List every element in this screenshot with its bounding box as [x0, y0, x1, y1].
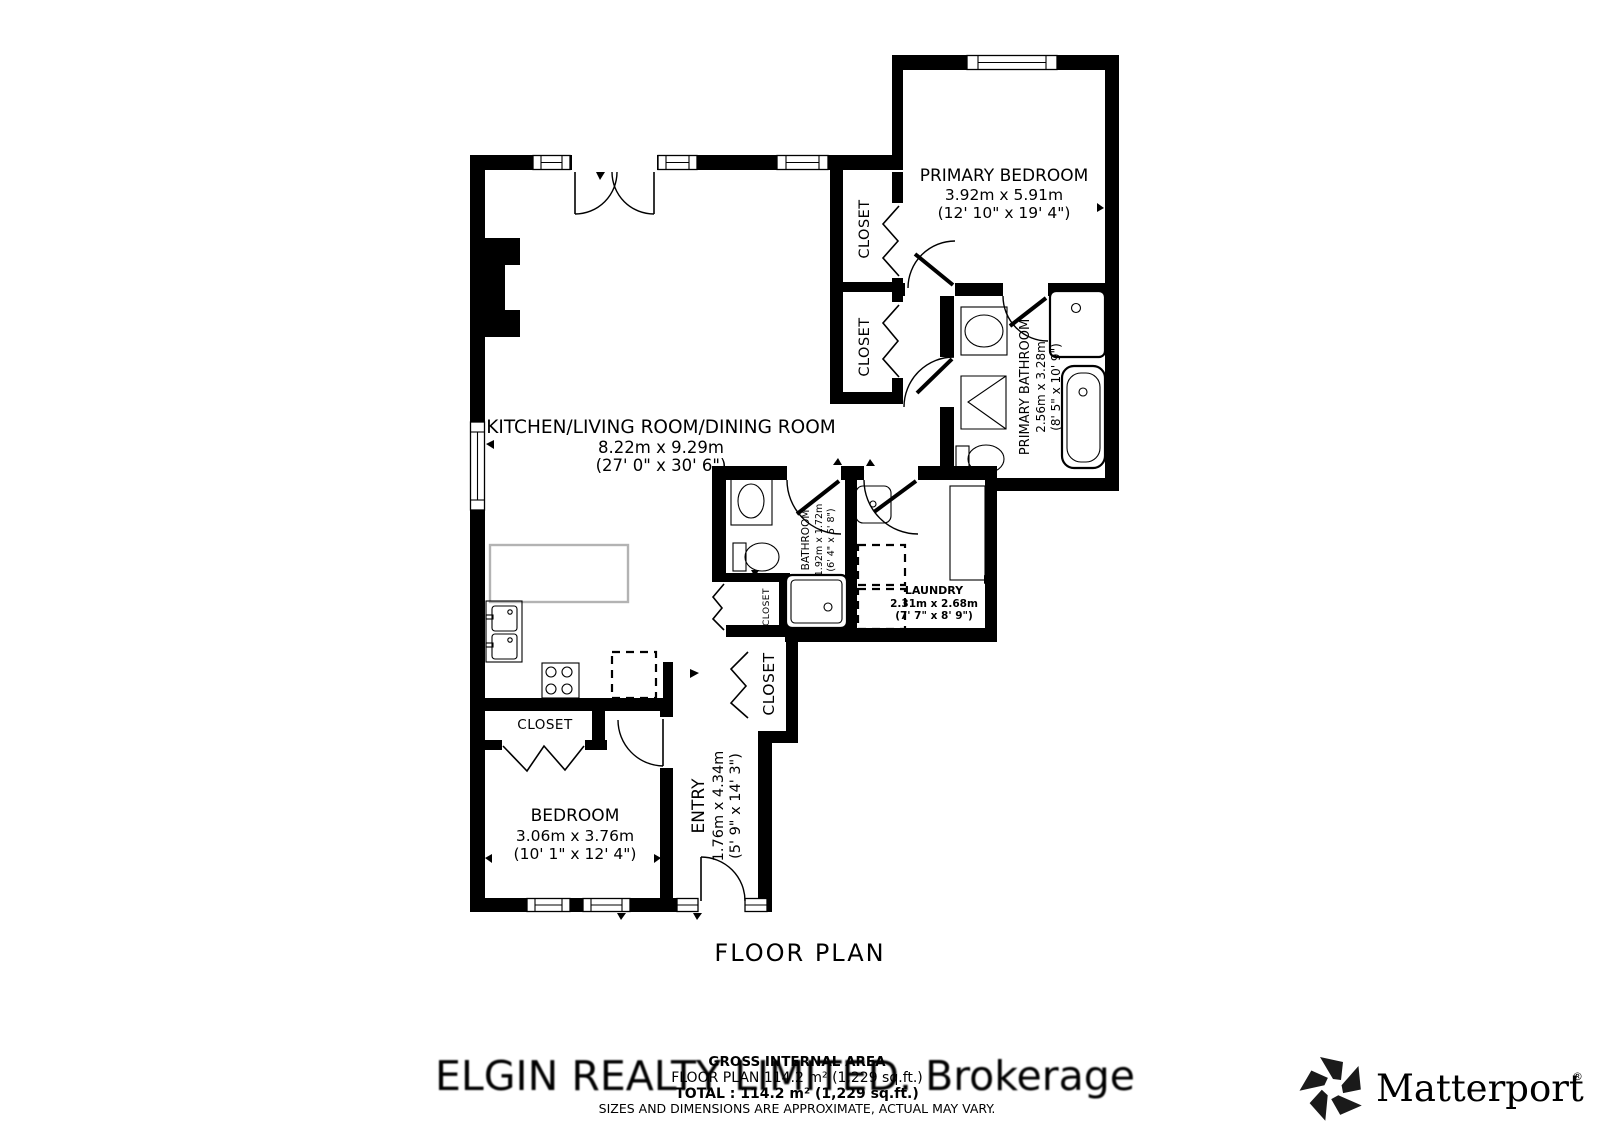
floor-plan-area: FLOOR PLAN 114.2 m² (1,229 sq.ft.) — [671, 1070, 923, 1086]
disclaimer: SIZES AND DIMENSIONS ARE APPROXIMATE, AC… — [599, 1101, 996, 1116]
svg-text:1.92m x 1.72m: 1.92m x 1.72m — [814, 504, 825, 576]
svg-text:(10' 1" x 12' 4"): (10' 1" x 12' 4") — [514, 845, 637, 863]
svg-text:(5' 9" x 14' 3"): (5' 9" x 14' 3") — [728, 753, 744, 859]
stove — [542, 663, 579, 698]
window — [658, 156, 697, 170]
window — [471, 422, 485, 510]
svg-text:PRIMARY BEDROOM: PRIMARY BEDROOM — [920, 166, 1089, 186]
window — [583, 899, 630, 912]
closet-label-small: CLOSET — [762, 588, 772, 626]
vanity — [961, 376, 1006, 429]
svg-text:PRIMARY BATHROOM: PRIMARY BATHROOM — [1018, 319, 1033, 455]
window — [745, 899, 767, 912]
svg-text:(12' 10" x 19' 4"): (12' 10" x 19' 4") — [938, 204, 1071, 222]
svg-text:ENTRY: ENTRY — [689, 778, 709, 834]
svg-text:(27' 0" x 30' 6"): (27' 0" x 30' 6") — [596, 456, 727, 475]
svg-text:(8' 5" x 10' 9"): (8' 5" x 10' 9") — [1049, 343, 1063, 431]
window — [967, 56, 1057, 70]
window — [677, 899, 698, 912]
bathtub — [1062, 366, 1105, 468]
svg-text:LAUNDRY: LAUNDRY — [905, 584, 964, 597]
bedroom-label: BEDROOM 3.06m x 3.76m (10' 1" x 12' 4") — [514, 806, 637, 863]
toilet — [733, 543, 779, 571]
french-door — [575, 172, 654, 214]
floor-plan-svg: ELGIN REALTY LIMITED. Brokerage — [0, 0, 1600, 1132]
washer — [858, 545, 905, 585]
svg-text:1.76m x 4.34m: 1.76m x 4.34m — [711, 751, 727, 862]
primary-bedroom-door — [908, 241, 955, 288]
closet-label-bedroom: CLOSET — [517, 717, 573, 733]
window — [527, 899, 570, 912]
gross-internal-area-label: GROSS INTERNAL AREA — [708, 1054, 886, 1070]
svg-text:(6' 4" x 5' 8"): (6' 4" x 5' 8") — [826, 508, 837, 571]
total-area: TOTAL : 114.2 m² (1,229 sq.ft.) — [675, 1086, 919, 1102]
svg-text:8.22m x 9.29m: 8.22m x 9.29m — [598, 438, 724, 457]
front-door — [701, 857, 745, 901]
bathroom-label: BATHROOM 1.92m x 1.72m (6' 4" x 5' 8") — [800, 504, 837, 576]
matterport-logo: Matterport ® — [1300, 1057, 1584, 1121]
primary-bedroom-label: PRIMARY BEDROOM 3.92m x 5.91m (12' 10" x… — [920, 166, 1089, 222]
entry-label: ENTRY 1.76m x 4.34m (5' 9" x 14' 3") — [689, 751, 744, 862]
svg-text:KITCHEN/LIVING ROOM/DINING ROO: KITCHEN/LIVING ROOM/DINING ROOM — [486, 417, 836, 438]
svg-text:3.06m x 3.76m: 3.06m x 3.76m — [516, 827, 634, 845]
svg-text:2.31m x 2.68m: 2.31m x 2.68m — [890, 598, 978, 610]
shower — [786, 575, 847, 628]
matterport-pinwheel-icon — [1300, 1057, 1366, 1121]
svg-text:3.92m x 5.91m: 3.92m x 5.91m — [945, 186, 1063, 204]
window — [533, 156, 570, 170]
laundry-counter — [950, 486, 985, 580]
room-labels: KITCHEN/LIVING ROOM/DINING ROOM 8.22m x … — [486, 166, 1088, 863]
hall-door — [904, 357, 954, 407]
wall-openings — [572, 155, 918, 912]
bedroom-door — [618, 719, 663, 766]
refrigerator — [612, 652, 656, 698]
page-title: FLOOR PLAN — [714, 939, 885, 967]
svg-text:2.56m x 3.28m: 2.56m x 3.28m — [1034, 341, 1048, 433]
closet-label-entry: CLOSET — [760, 652, 778, 715]
svg-text:BATHROOM: BATHROOM — [800, 510, 812, 571]
matterport-wordmark: Matterport — [1376, 1067, 1584, 1110]
window — [777, 156, 828, 170]
closet-label-lower: CLOSET — [857, 317, 873, 376]
closet-label-upper: CLOSET — [857, 199, 873, 258]
kitchen-fixtures — [486, 545, 656, 698]
floor-plan-page: ELGIN REALTY LIMITED. Brokerage — [0, 0, 1600, 1132]
registered-mark: ® — [1572, 1070, 1583, 1083]
svg-text:BEDROOM: BEDROOM — [531, 806, 620, 826]
svg-text:(7' 7" x 8' 9"): (7' 7" x 8' 9") — [895, 610, 973, 622]
